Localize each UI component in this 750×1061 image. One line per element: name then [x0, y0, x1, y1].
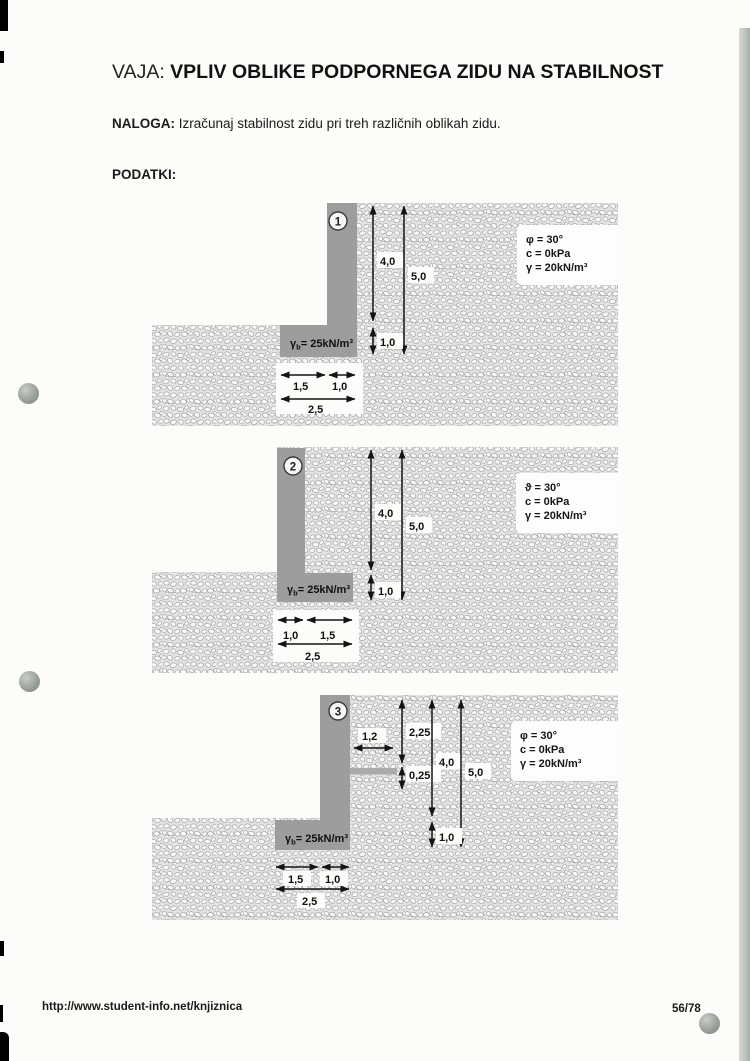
svg-text:4,0: 4,0 [439, 757, 454, 769]
binder-hole [699, 1013, 720, 1034]
title-main: VPLIV OBLIKE PODPORNEGA ZIDU NA STABILNO… [170, 61, 663, 83]
footer-page-number: 56/78 [672, 1003, 701, 1015]
svg-text:2,5: 2,5 [308, 404, 323, 416]
svg-text:γ = 20kN/m³: γ = 20kN/m³ [520, 758, 582, 770]
svg-text:γ = 20kN/m³: γ = 20kN/m³ [525, 510, 587, 522]
svg-text:φ = 30°: φ = 30° [520, 730, 557, 742]
diagram-number-badge: 3 [329, 702, 347, 720]
scan-artifact-top-left [0, 0, 8, 31]
svg-text:ϑ = 30°: ϑ = 30° [525, 482, 561, 494]
svg-text:1,5: 1,5 [293, 381, 308, 393]
svg-text:1,5: 1,5 [320, 630, 335, 642]
scan-right-edge-shadow [739, 28, 750, 1061]
scan-artifact-left-bottom-1 [0, 941, 4, 956]
title-prefix: VAJA: [112, 61, 170, 83]
svg-text:c = 0kPa: c = 0kPa [526, 248, 571, 260]
scan-artifact-bottom-corner [0, 1032, 9, 1061]
svg-text:1,0: 1,0 [283, 630, 298, 642]
diagram-1-retaining-wall: 4,0 5,0 1,0 1,5 1,0 2,5 γb= 25kN/m³ [152, 200, 620, 428]
excavation-white-area [152, 447, 277, 572]
excavation-white-area [152, 203, 327, 325]
task-line: NALOGA: Izračunaj stabilnost zidu pri tr… [112, 116, 501, 131]
excavation-white-area [152, 695, 320, 818]
svg-text:c = 0kPa: c = 0kPa [520, 744, 565, 756]
svg-text:1,0: 1,0 [325, 874, 340, 886]
svg-text:2,5: 2,5 [302, 896, 317, 908]
svg-text:1,0: 1,0 [439, 832, 454, 844]
footer-url: http://www.student-info.net/knjiznica [42, 1001, 242, 1013]
svg-text:3: 3 [335, 707, 341, 719]
page-title: VAJA: VPLIV OBLIKE PODPORNEGA ZIDU NA ST… [112, 61, 663, 84]
scan-artifact-left [0, 51, 4, 63]
svg-text:5,0: 5,0 [409, 521, 424, 533]
scan-artifact-left-bottom-2 [0, 1005, 3, 1022]
svg-text:c = 0kPa: c = 0kPa [525, 496, 570, 508]
svg-text:4,0: 4,0 [378, 508, 393, 520]
svg-text:γ = 20kN/m³: γ = 20kN/m³ [526, 262, 588, 274]
scanned-document-page: VAJA: VPLIV OBLIKE PODPORNEGA ZIDU NA ST… [0, 0, 750, 1061]
soil-parameters-box: φ = 30° c = 0kPa γ = 20kN/m³ [511, 721, 620, 781]
svg-text:5,0: 5,0 [468, 767, 483, 779]
svg-text:4,0: 4,0 [380, 256, 395, 268]
diagram-2-retaining-wall: 4,0 5,0 1,0 1,0 1,5 2,5 γb= 25kN/m³ 2 [152, 445, 620, 675]
wall-shelf-key [350, 768, 397, 775]
diagram-3-retaining-wall: 1,2 2,25 0,25 4,0 5,0 1,0 [152, 693, 620, 938]
task-label: NALOGA: [112, 116, 179, 131]
svg-text:0,25: 0,25 [409, 770, 430, 782]
binder-hole [19, 671, 40, 692]
binder-hole [18, 383, 39, 404]
task-text: Izračunaj stabilnost zidu pri treh razli… [179, 116, 501, 131]
soil-parameters-box: ϑ = 30° c = 0kPa γ = 20kN/m³ [516, 473, 620, 533]
svg-text:1,0: 1,0 [378, 586, 393, 598]
svg-text:1,0: 1,0 [332, 381, 347, 393]
svg-text:1: 1 [335, 217, 342, 229]
svg-text:5,0: 5,0 [411, 271, 426, 283]
data-label: PODATKI: [112, 167, 176, 182]
svg-text:2,25: 2,25 [409, 727, 430, 739]
svg-text:2: 2 [290, 462, 296, 474]
svg-text:1,0: 1,0 [380, 337, 395, 349]
svg-text:1,5: 1,5 [288, 874, 303, 886]
svg-text:1,2: 1,2 [362, 731, 377, 743]
diagram-number-badge: 1 [329, 212, 347, 230]
svg-text:2,5: 2,5 [305, 651, 320, 663]
soil-parameters-box: φ = 30° c = 0kPa γ = 20kN/m³ [517, 225, 620, 285]
diagram-number-badge: 2 [284, 457, 302, 475]
svg-text:φ = 30°: φ = 30° [526, 234, 563, 246]
